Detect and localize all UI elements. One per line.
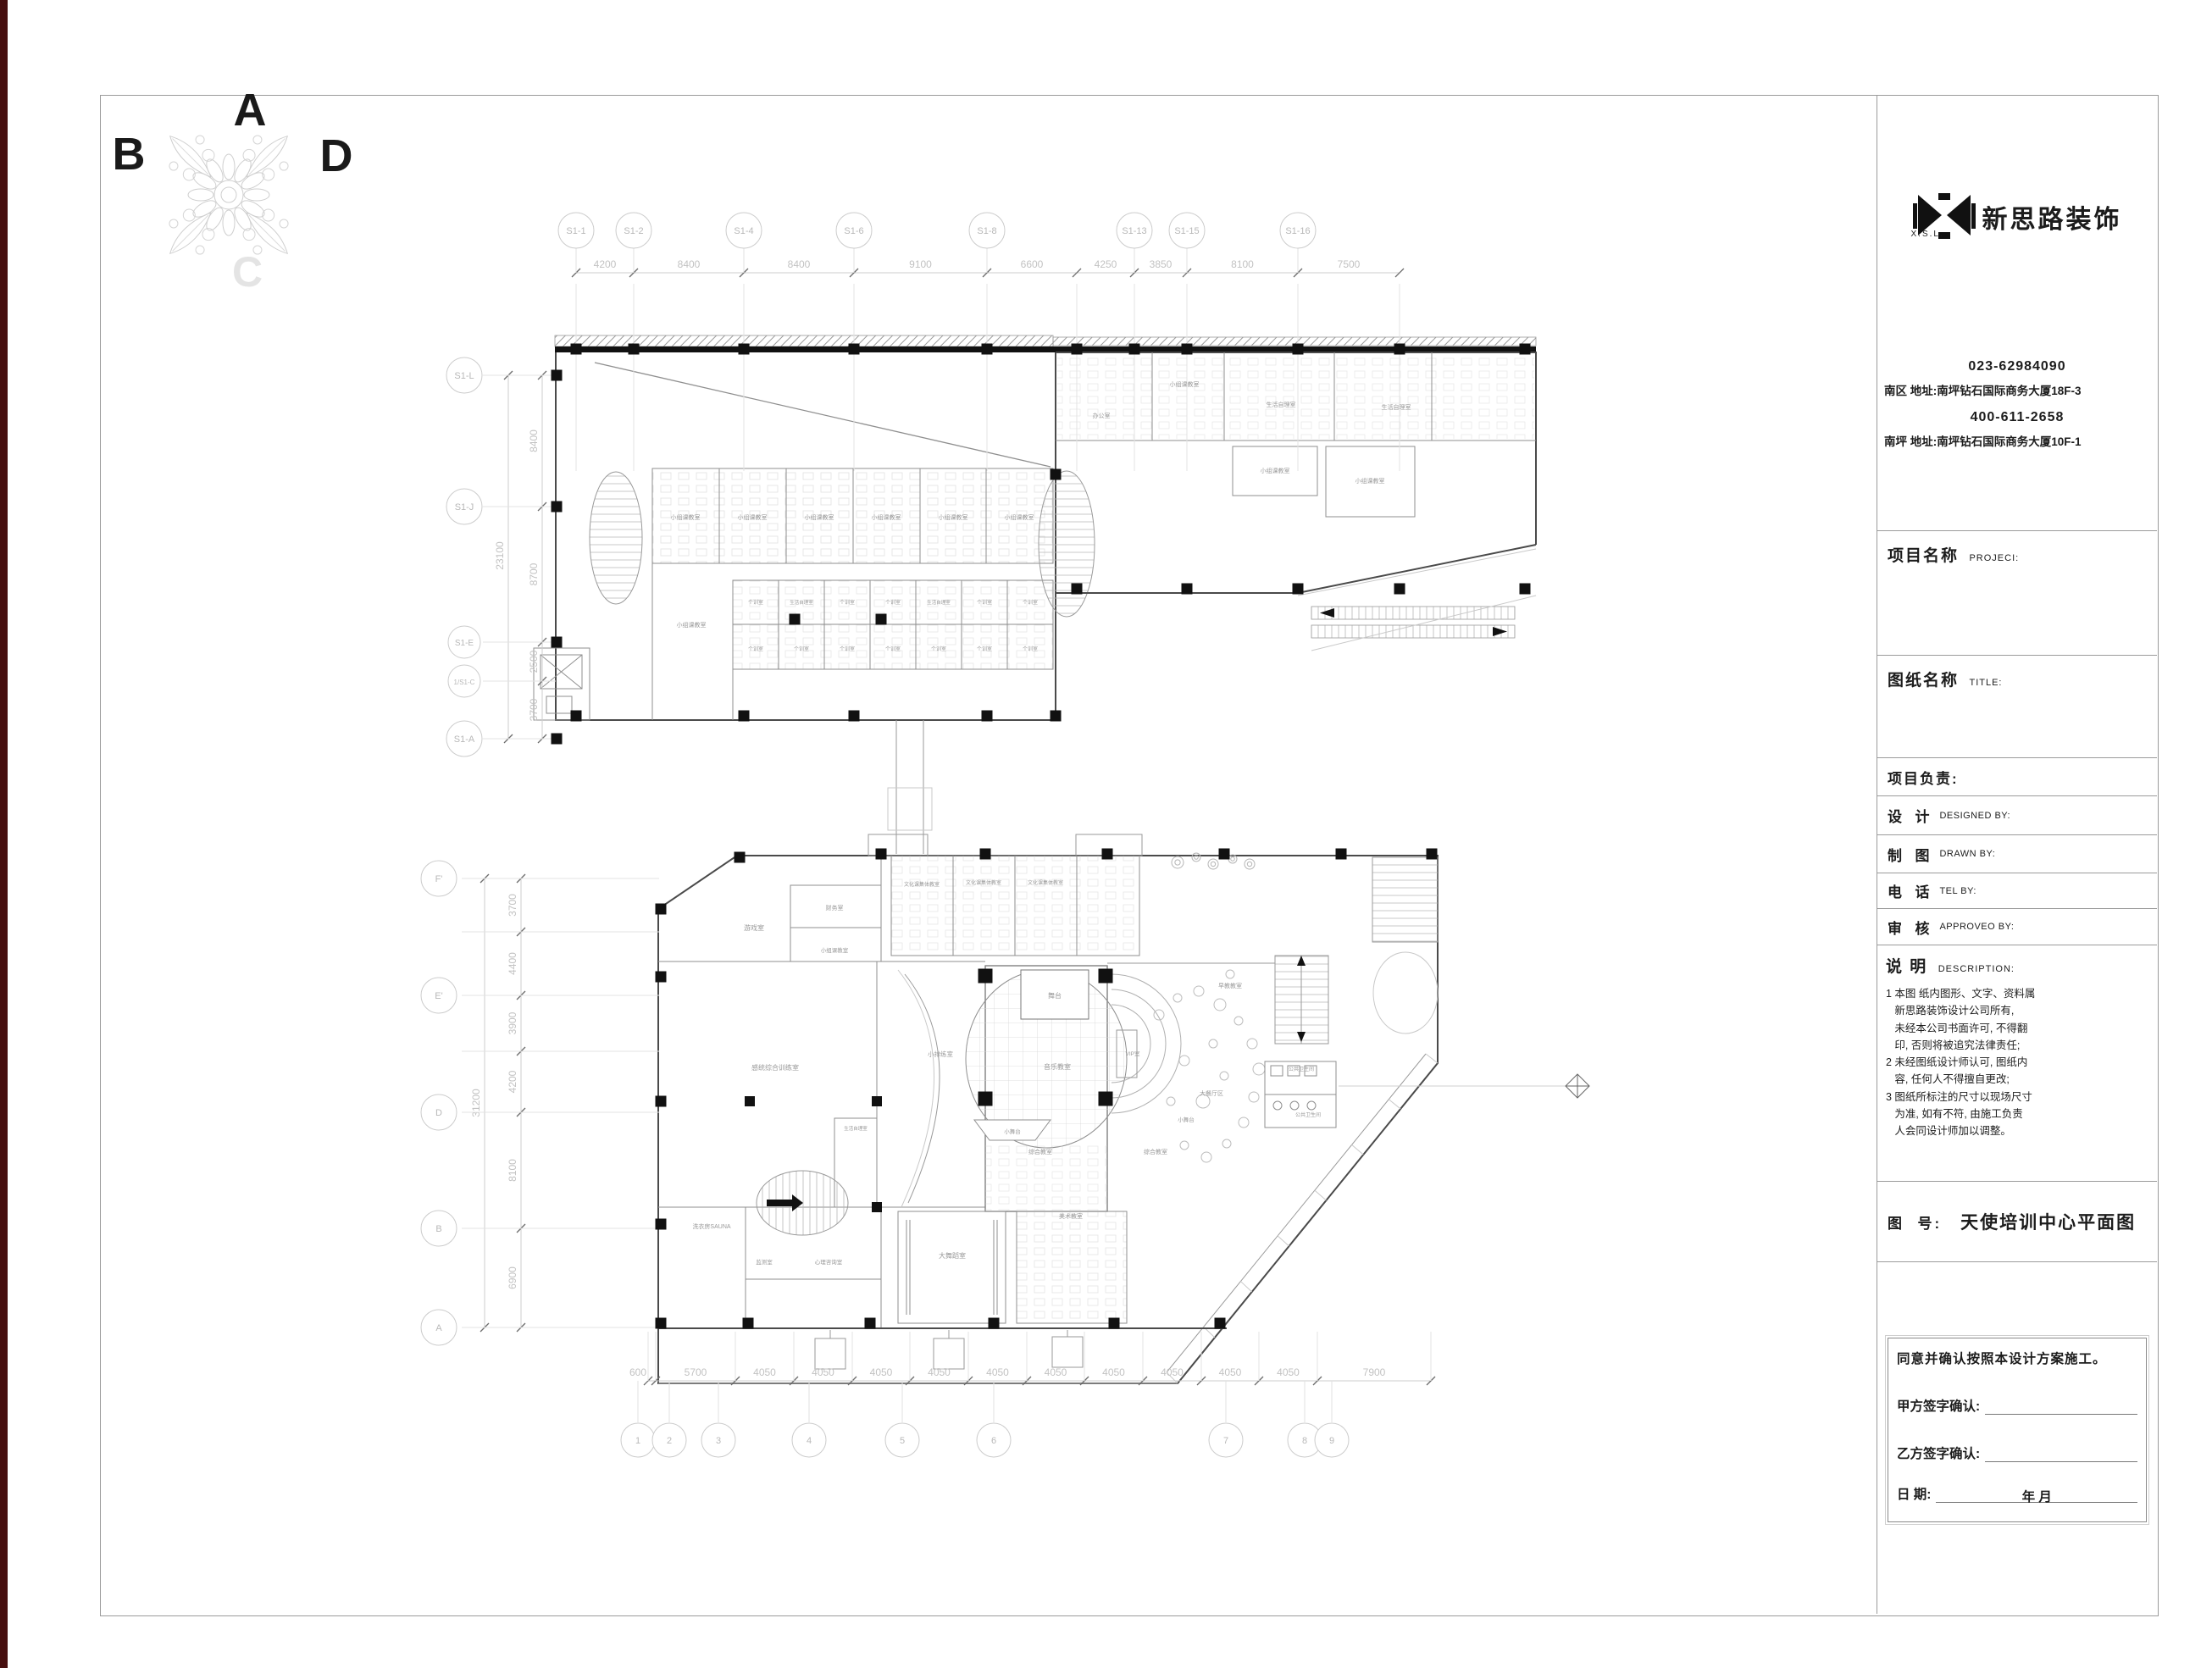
grid-bubble-label: 2 [667, 1436, 672, 1446]
ramp-rung [1278, 1236, 1289, 1246]
room-label: 文化课集体教室 [904, 881, 940, 888]
column [978, 1092, 993, 1106]
column [872, 1096, 882, 1106]
canopy-footings [815, 1330, 1083, 1369]
round-table-icon [1234, 1017, 1243, 1025]
drawing-line [168, 160, 180, 172]
drawing-line [223, 154, 235, 180]
compass-leaf [154, 120, 227, 193]
room-label: 小组课教室 [1005, 513, 1034, 521]
column [656, 1096, 667, 1107]
column [1394, 584, 1405, 595]
project-manager-label: 项目负责: [1888, 767, 1959, 788]
room-label: 小组课教室 [1355, 477, 1385, 485]
dim-label: 3700 [528, 698, 540, 721]
ramp-rung [1426, 1054, 1438, 1063]
date-label: 日 期: [1897, 1484, 1931, 1503]
round-table-icon [1179, 1056, 1189, 1066]
column [552, 637, 563, 648]
column [876, 614, 887, 625]
room-label: 个训室 [1023, 599, 1038, 606]
room-label: 生活自理室 [790, 599, 813, 606]
room-label: 早教教室 [1218, 982, 1242, 989]
dim-label: 3900 [507, 1011, 518, 1034]
room-label: 文化课集体教室 [1028, 879, 1063, 886]
room-label: 小组课教室 [872, 513, 901, 521]
agreement-text: 同意并确认按照本设计方案施工。 [1897, 1349, 2137, 1367]
dim-label: 4050 [1219, 1366, 1242, 1378]
room-label: 小组课教室 [671, 513, 701, 521]
lower-floor-plan [658, 834, 1589, 1383]
drawing-line [188, 189, 213, 201]
oval-stair-icon [1039, 471, 1095, 617]
approved-by-en: APPROVEO BY: [1939, 922, 2014, 932]
column [656, 904, 667, 915]
dim-label: 5700 [685, 1366, 707, 1378]
date-line: 年 月 [1936, 1487, 2137, 1503]
description-notes: 1 本图 纸内图形、文字、资料属 新思路装饰设计公司所有, 未经本公司书面许可,… [1886, 985, 2157, 1139]
grid-bubble-label: F' [435, 874, 443, 884]
tel-label: 电 话 [1888, 880, 1931, 901]
dim-label: 4250 [1095, 258, 1117, 270]
column [865, 1318, 876, 1329]
column [1219, 849, 1230, 860]
round-table-icon [1167, 1097, 1175, 1106]
room-label: 综合教室 [1028, 1148, 1052, 1155]
room-label: 小组课教室 [821, 946, 849, 954]
grid-bubble-label: S1-A [454, 734, 475, 745]
column [980, 849, 991, 860]
room-label: 个训室 [840, 646, 855, 652]
description-section: 说 明 DESCRIPTION: 1 本图 纸内图形、文字、资料属 新思路装饰设… [1877, 945, 2157, 1181]
room-label: 个训室 [748, 599, 763, 606]
room-label: 个训室 [977, 646, 992, 652]
room-label: 感统综合训练室 [751, 1063, 799, 1072]
round-table-icon [1222, 1139, 1231, 1148]
dim-label: 4050 [1277, 1366, 1300, 1378]
round-table-icon [1247, 1039, 1257, 1049]
dim-label: 3700 [507, 894, 518, 917]
project-name-label: 项目名称 [1888, 547, 1959, 565]
drawing-line [244, 189, 269, 201]
dim-label: 4050 [986, 1366, 1009, 1378]
room-label: 个训室 [885, 599, 901, 606]
dim-label: 7500 [1338, 258, 1361, 270]
room-label: 个训室 [840, 599, 855, 606]
room-label: 美术教室 [1059, 1212, 1083, 1220]
column [552, 370, 563, 381]
address-nanping: 南坪 地址:南坪钻石国际商务大厦10F-1 [1877, 432, 2157, 449]
room-label: 生活自理室 [1267, 401, 1296, 408]
room-label: 洗衣房SAUNA [692, 1222, 730, 1230]
room-label: 财务室 [826, 904, 844, 912]
grid-bubble-label: 7 [1223, 1436, 1228, 1446]
description-note-line: 3 图纸所标注的尺寸以现场尺寸 [1886, 1089, 2157, 1106]
drawing-line [223, 210, 235, 236]
column [982, 344, 993, 355]
room-label: 游戏室 [744, 923, 764, 932]
figure-number-row: 图 号: 天使培训中心平面图 [1877, 1181, 2157, 1261]
grid-bubble-label: B [435, 1224, 441, 1234]
drawing-line [223, 154, 235, 180]
column [1129, 344, 1140, 355]
grid-bubble-label: 5 [900, 1436, 905, 1446]
room-label: 综合教室 [1144, 1148, 1167, 1155]
description-en: DESCRIPTION: [1938, 964, 2015, 974]
stair-icon [1275, 857, 1438, 1044]
grid-bubble-label: S1-8 [977, 226, 996, 236]
drawing-line [278, 218, 290, 230]
dim-label: 8400 [678, 258, 701, 270]
oval-stair-icon [590, 472, 642, 604]
drawing-line [278, 160, 290, 172]
sheet-title-field: 图纸名称 TITLE: [1877, 655, 2157, 757]
dim-label: 4050 [753, 1366, 776, 1378]
grid-bubble-label: 4 [807, 1436, 812, 1446]
party-a-signature-line [1985, 1399, 2137, 1415]
round-table-icon [1201, 1152, 1211, 1162]
grid-bubble-label: S1-L [454, 371, 474, 381]
drawing-line [1247, 862, 1251, 866]
dim-label: 4200 [507, 1070, 518, 1093]
column [1099, 1092, 1113, 1106]
logo-xsl-text: X.S.L. [1911, 230, 1944, 239]
grid-bubble-label: S1-16 [1285, 226, 1310, 236]
room-label: 小排练室 [928, 1050, 953, 1058]
grid-bubble-label: S1-15 [1174, 226, 1199, 236]
room-label: 个训室 [885, 646, 901, 652]
dim-label: 4050 [1161, 1366, 1184, 1378]
sheet-title-label: 图纸名称 [1888, 672, 1959, 690]
dim-label: 9100 [909, 258, 932, 270]
column [1099, 969, 1113, 984]
description-note-line: 新思路装饰设计公司所有, [1886, 1002, 2157, 1019]
dim-label: 3850 [1150, 258, 1173, 270]
column [1427, 849, 1438, 860]
bearing-wall [555, 346, 1536, 352]
room-label: 文化课集体教室 [966, 879, 1001, 886]
dim-label: 6600 [1021, 258, 1044, 270]
drawing-line [1211, 862, 1215, 866]
figure-number-label: 图 号: [1888, 1211, 1942, 1233]
grid-bubble-label: S1-1 [566, 226, 585, 236]
entry-marker-diamond [1566, 1074, 1589, 1098]
ramp-rung [1315, 1190, 1327, 1200]
dim-label: 8400 [788, 258, 811, 270]
grid-bubble-label: S1-13 [1122, 226, 1146, 236]
contact-info: 023-62984090 南区 地址:南坪钻石国际商务大厦18F-3 400-6… [1877, 337, 2157, 530]
room-label: 个训室 [794, 646, 809, 652]
dim-label: 600 [629, 1366, 646, 1378]
figure-number-value: 天使培训中心平面图 [1960, 1209, 2136, 1234]
compass-letter-d: D [320, 130, 353, 181]
room-label: 小舞台 [1004, 1128, 1021, 1135]
round-table-icon [1226, 970, 1234, 978]
column [571, 344, 582, 355]
party-b-label: 乙方签字确认: [1897, 1444, 1980, 1462]
column [1182, 584, 1193, 595]
column [1520, 344, 1531, 355]
column [849, 344, 860, 355]
round-table-icon [1253, 1063, 1265, 1075]
round-table-icon [1173, 994, 1182, 1002]
description-note-line: 人会同设计师加以调整。 [1886, 1122, 2157, 1139]
grid-bubble-label: 1/S1-C [454, 679, 475, 686]
approved-by-row: 审 核 APPROVEO BY: [1877, 908, 2157, 945]
dim-label: 4200 [594, 258, 617, 270]
company-name: 新思路装饰 [1982, 198, 2122, 236]
column [629, 344, 640, 355]
column [1072, 584, 1083, 595]
signature-box: 同意并确认按照本设计方案施工。 甲方签字确认: 乙方签字确认: 日 期: 年 月 [1888, 1338, 2147, 1522]
column [1394, 344, 1405, 355]
column [1336, 849, 1347, 860]
dim-label: 4050 [928, 1366, 951, 1378]
title-block: X.S.L. 新思路装饰 023-62984090 南区 地址:南坪钻石国际商务… [1877, 96, 2157, 1614]
column [876, 849, 887, 860]
dim-label: 7900 [1363, 1366, 1386, 1378]
project-name-en: PROJECI: [1969, 553, 2019, 563]
grid-bubble-label: A [435, 1323, 442, 1333]
curved-wall [905, 974, 940, 1203]
room-label: 监测室 [756, 1258, 773, 1266]
compass-ornament: A B D C [113, 85, 353, 296]
drawing-line [194, 134, 206, 146]
room-label: VIP室 [1126, 1050, 1140, 1057]
escalator-icon [1298, 549, 1536, 651]
spacer [1877, 1261, 2157, 1329]
description-note-line: 未经本公司书面许可, 不得翻 [1886, 1020, 2157, 1037]
dim-label: 4050 [1102, 1366, 1125, 1378]
column [1072, 344, 1083, 355]
designed-by-row: 设 计 DESIGNED BY: [1877, 795, 2157, 834]
performance-hall [966, 966, 1127, 1211]
round-table-icon [1249, 1092, 1259, 1102]
drawing-line [244, 189, 269, 201]
room-label: 公共卫生间 [1295, 1111, 1321, 1118]
phone-south: 023-62984090 [1877, 359, 2157, 374]
column [872, 1202, 882, 1212]
grid-bubble-label: S1-J [455, 502, 474, 513]
project-name-field: 项目名称 PROJECI: [1877, 530, 2157, 655]
dim-label: 8100 [507, 1159, 518, 1182]
column [739, 344, 750, 355]
tel-en: TEL BY: [1939, 886, 1976, 896]
column [656, 1219, 667, 1230]
room-label: 生活自理室 [927, 599, 951, 606]
description-label: 说 明 [1886, 958, 1927, 976]
column [1102, 849, 1113, 860]
project-manager-row: 项目负责: [1877, 757, 2157, 795]
grid-bubble-label: 9 [1329, 1436, 1334, 1446]
room-label: 小组课教室 [805, 513, 834, 521]
compass-letter-a: A [234, 85, 267, 136]
column [552, 734, 563, 745]
column [978, 969, 993, 984]
room-label: 个训室 [1023, 646, 1038, 652]
column [552, 502, 563, 513]
description-note-line: 为准, 如有不符, 由施工负责 [1886, 1106, 2157, 1122]
column [1520, 584, 1531, 595]
room-label: 舞台 [1048, 991, 1062, 1000]
room-label: 小组课教室 [1170, 380, 1200, 388]
grid-bubble-label: E' [435, 991, 442, 1001]
room-label: 个训室 [748, 646, 763, 652]
grid-bubble-label: S1-2 [624, 226, 643, 236]
column [1293, 584, 1304, 595]
grid-bubble-label: S1-6 [844, 226, 863, 236]
room-label: 大餐厅区 [1200, 1089, 1223, 1097]
drawing-line [1172, 856, 1184, 868]
phone-nanping: 400-611-2658 [1877, 410, 2157, 425]
round-table-icon [1220, 1072, 1228, 1080]
company-logo: X.S.L. 新思路装饰 [1877, 96, 2157, 337]
column [849, 711, 860, 722]
room-label: 心理咨询室 [815, 1258, 843, 1266]
drawing-line [223, 210, 235, 236]
party-b-signature-line [1985, 1446, 2137, 1462]
column [1051, 711, 1062, 722]
drawing-line [194, 244, 206, 256]
drawn-by-row: 制 图 DRAWN BY: [1877, 834, 2157, 873]
room-label: 小组课教室 [1261, 467, 1290, 474]
dim-label: 6900 [507, 1266, 518, 1289]
approved-by-label: 审 核 [1888, 917, 1931, 938]
upper-floor-plan [534, 335, 1536, 854]
column [1293, 344, 1304, 355]
dim-label: 8700 [528, 562, 540, 585]
grid-bubble-label: S1-4 [734, 226, 753, 236]
ramp-rung [1240, 1282, 1251, 1292]
ramp-rung [1389, 1100, 1400, 1109]
drawing-line [168, 218, 180, 230]
grid-bubble-label: 8 [1302, 1436, 1307, 1446]
grid-bubble-label: S1-E [455, 639, 474, 648]
drawn-by-en: DRAWN BY: [1939, 849, 1995, 859]
room-label: 小组课教室 [738, 513, 768, 521]
room-label: 个训室 [977, 599, 992, 606]
dim-label: 4050 [812, 1366, 834, 1378]
column [790, 614, 801, 625]
room-label: 音乐教室 [1044, 1062, 1071, 1071]
compass-letter-c: C [232, 248, 263, 296]
drawing-line [1192, 853, 1200, 862]
dim-total-label: 23100 [494, 541, 506, 570]
round-table-icon [1239, 1117, 1249, 1128]
drawing-line [188, 189, 213, 201]
column [1215, 1318, 1226, 1329]
column [743, 1318, 754, 1329]
dining-tables [1154, 970, 1265, 1162]
column [1109, 1318, 1120, 1329]
round-table-icon [1214, 999, 1226, 1011]
grid-bubble-label: 1 [635, 1436, 640, 1446]
grid-bubble-label: 3 [716, 1436, 721, 1446]
tel-row: 电 话 TEL BY: [1877, 873, 2157, 908]
grid-bubble-label: 6 [991, 1436, 996, 1446]
column [982, 711, 993, 722]
column [735, 852, 746, 863]
dim-label: 8400 [528, 429, 540, 452]
room-label: 小舞台 [1178, 1116, 1195, 1123]
column [1182, 344, 1193, 355]
room-label: 生活自理室 [1382, 403, 1411, 411]
description-note-line: 2 未经图纸设计师认可, 图纸内 [1886, 1054, 2157, 1071]
column [739, 711, 750, 722]
room-label: 大舞蹈室 [939, 1251, 966, 1260]
dim-total-label: 31200 [470, 1089, 482, 1117]
party-a-label: 甲方签字确认: [1897, 1396, 1980, 1415]
column [656, 972, 667, 983]
designed-by-en: DESIGNED BY: [1939, 811, 2010, 821]
round-table-icon [1194, 986, 1204, 996]
room-label: 小组课教室 [939, 513, 968, 521]
room-label: 办公室 [1093, 412, 1111, 419]
xsl-logo-icon: X.S.L. [1913, 193, 1976, 241]
drawing-line [1245, 859, 1255, 869]
compass-letter-b: B [113, 129, 146, 180]
sheet-title-en: TITLE: [1969, 678, 2002, 688]
drawing-line [1231, 857, 1235, 862]
column [745, 1096, 755, 1106]
column [571, 711, 582, 722]
dim-label: 8100 [1231, 258, 1254, 270]
description-note-line: 印, 否则将被追究法律责任; [1886, 1037, 2157, 1054]
ramp-rung [1352, 1144, 1364, 1155]
compass-leaf [154, 197, 227, 269]
round-table-icon [1209, 1039, 1217, 1048]
drawing-sheet: A B D C [0, 0, 2212, 1668]
drawn-by-label: 制 图 [1888, 844, 1931, 865]
dim-label: 4050 [870, 1366, 893, 1378]
dim-label: 4400 [507, 952, 518, 975]
drawing-line [1208, 859, 1218, 869]
description-note-line: 容, 任何人不得擅自更改; [1886, 1071, 2157, 1088]
address-south: 南区 地址:南坪钻石国际商务大厦18F-3 [1877, 381, 2157, 398]
drawing-line [1175, 860, 1180, 865]
room-label: 个训室 [931, 646, 946, 652]
room-label: 生活自理室 [844, 1125, 868, 1132]
description-note-line: 1 本图 纸内图形、文字、资料属 [1886, 985, 2157, 1002]
room-label: 公共卫生间 [1289, 1066, 1314, 1072]
round-table-icon [1180, 1141, 1189, 1150]
round-table-icon [1154, 1010, 1164, 1020]
column [989, 1318, 1000, 1329]
room-label: 小组课教室 [677, 621, 707, 629]
grid-bubble-label: D [435, 1108, 442, 1118]
column [1051, 469, 1062, 480]
dim-label: 2500 [528, 650, 540, 673]
designed-by-label: 设 计 [1888, 805, 1931, 826]
column [656, 1318, 667, 1329]
dim-label: 4050 [1045, 1366, 1067, 1378]
